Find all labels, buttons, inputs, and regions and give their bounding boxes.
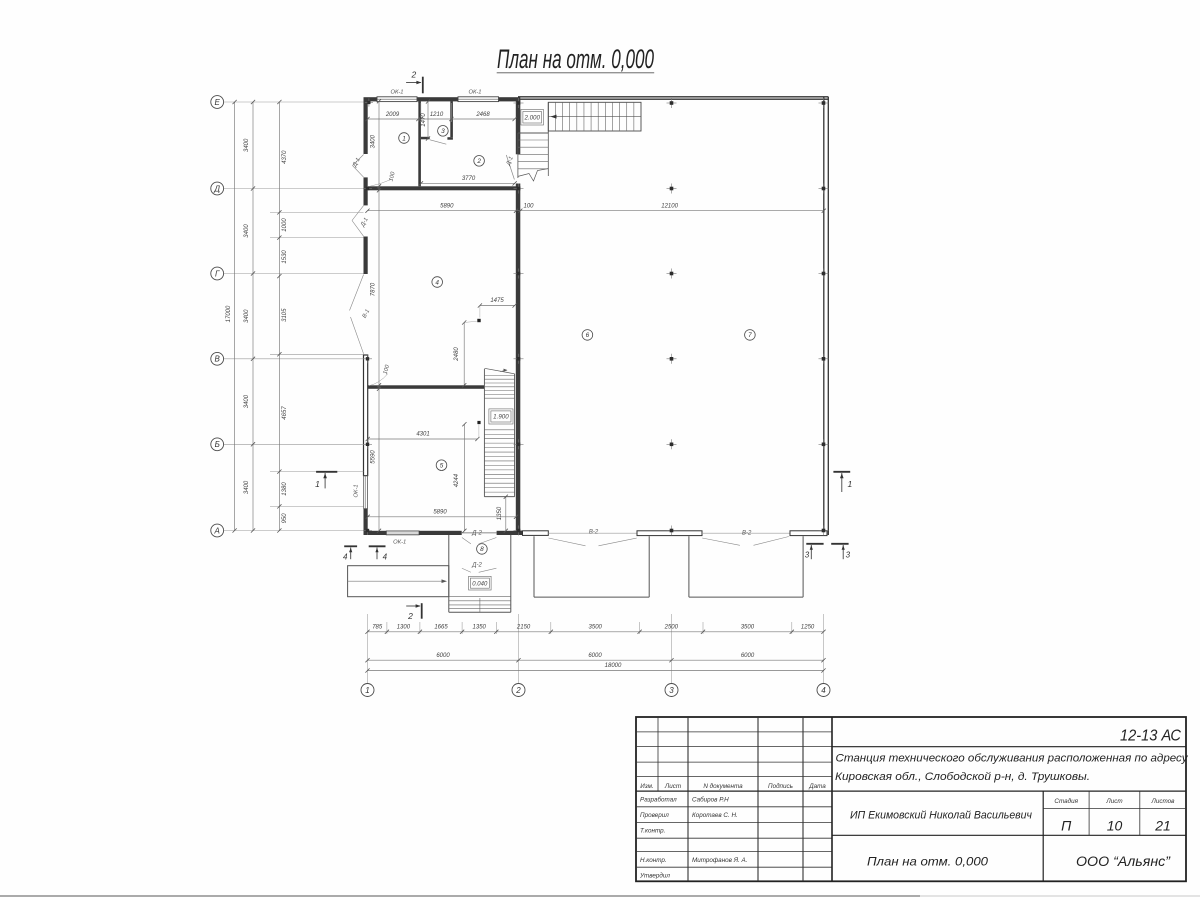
svg-text:4: 4 [821, 686, 826, 695]
svg-text:5: 5 [440, 463, 444, 470]
svg-text:2150: 2150 [516, 624, 531, 630]
svg-text:ОК-1: ОК-1 [353, 484, 359, 497]
svg-text:Изм.: Изм. [640, 783, 653, 790]
svg-text:1: 1 [315, 479, 320, 489]
svg-text:1665: 1665 [434, 624, 448, 630]
svg-text:Б: Б [215, 440, 220, 449]
svg-text:950: 950 [282, 513, 288, 524]
svg-text:3105: 3105 [282, 308, 288, 322]
svg-text:7: 7 [748, 332, 752, 339]
svg-text:6000: 6000 [588, 653, 602, 659]
svg-text:2: 2 [407, 611, 413, 621]
svg-text:10: 10 [1107, 818, 1123, 834]
svg-text:2: 2 [476, 158, 481, 165]
svg-text:1: 1 [365, 686, 369, 695]
svg-text:18000: 18000 [605, 663, 622, 669]
svg-text:8: 8 [480, 546, 484, 553]
svg-text:12-13 АС: 12-13 АС [1120, 728, 1182, 745]
svg-text:ОК-1: ОК-1 [390, 90, 403, 96]
svg-text:17000: 17000 [226, 305, 232, 322]
svg-text:1300: 1300 [397, 624, 411, 630]
svg-text:4244: 4244 [454, 473, 460, 487]
svg-text:3400: 3400 [244, 480, 250, 494]
svg-text:ОК-1: ОК-1 [393, 540, 406, 546]
svg-text:3400: 3400 [371, 134, 377, 148]
svg-text:3400: 3400 [244, 138, 250, 152]
svg-text:2: 2 [411, 70, 417, 80]
svg-text:Коротаев С. Н.: Коротаев С. Н. [692, 812, 738, 819]
svg-text:В-2: В-2 [742, 531, 752, 537]
svg-text:3: 3 [805, 551, 810, 560]
svg-text:1250: 1250 [801, 624, 815, 630]
svg-text:Д-2: Д-2 [471, 562, 482, 568]
svg-text:В: В [215, 355, 221, 364]
svg-text:4370: 4370 [282, 150, 288, 164]
svg-text:3400: 3400 [244, 224, 250, 238]
svg-text:1380: 1380 [282, 482, 288, 496]
svg-text:2500: 2500 [664, 624, 679, 630]
svg-text:П: П [1061, 818, 1072, 834]
svg-text:4657: 4657 [282, 406, 288, 420]
svg-text:1: 1 [848, 479, 853, 489]
svg-text:1350: 1350 [473, 624, 487, 630]
svg-text:4: 4 [435, 279, 439, 286]
svg-text:А: А [214, 526, 220, 535]
svg-text:12100: 12100 [661, 203, 678, 209]
svg-text:Г: Г [215, 269, 220, 278]
svg-text:Д: Д [213, 184, 220, 193]
svg-text:Подпись: Подпись [768, 782, 793, 790]
svg-text:3: 3 [441, 128, 445, 135]
svg-text:Проверил: Проверил [640, 812, 669, 819]
svg-text:N документа: N документа [703, 782, 743, 790]
svg-text:1530: 1530 [282, 250, 288, 264]
svg-text:Кировская обл., Слободской р-н: Кировская обл., Слободской р-н, д. Трушк… [835, 771, 1090, 783]
svg-text:785: 785 [372, 624, 383, 630]
svg-text:0.040: 0.040 [472, 582, 488, 588]
svg-text:ИП Екимовский Николай Васильев: ИП Екимовский Николай Васильевич [850, 810, 1032, 822]
svg-text:Лист: Лист [664, 783, 681, 790]
svg-text:Н.контр.: Н.контр. [640, 857, 667, 864]
svg-text:3400: 3400 [244, 309, 250, 323]
svg-text:Т.контр.: Т.контр. [640, 828, 665, 835]
svg-text:3500: 3500 [741, 624, 755, 630]
svg-text:4: 4 [343, 553, 348, 562]
svg-text:Листов: Листов [1151, 798, 1176, 805]
svg-text:Сабиров Р.Н: Сабиров Р.Н [692, 796, 729, 804]
svg-text:1350: 1350 [497, 506, 503, 520]
svg-text:5890: 5890 [440, 203, 454, 209]
svg-text:1470: 1470 [421, 113, 427, 127]
svg-text:6000: 6000 [436, 653, 450, 659]
svg-text:Митрофанов Я. А.: Митрофанов Я. А. [692, 857, 747, 864]
svg-text:План на отм. 0,000: План на отм. 0,000 [497, 44, 654, 74]
svg-text:Стадия: Стадия [1054, 797, 1078, 805]
svg-text:4301: 4301 [416, 432, 429, 438]
svg-text:Станция технического обслужива: Станция технического обслуживания распол… [836, 753, 1189, 765]
svg-text:6000: 6000 [741, 653, 755, 659]
svg-text:3770: 3770 [462, 176, 476, 182]
svg-text:2: 2 [515, 686, 521, 695]
svg-text:3: 3 [846, 551, 851, 560]
svg-text:6: 6 [586, 332, 590, 339]
svg-text:100: 100 [523, 203, 534, 209]
svg-text:2.000: 2.000 [523, 114, 540, 121]
svg-text:1.900: 1.900 [493, 414, 509, 421]
svg-text:4: 4 [383, 553, 388, 562]
svg-text:7870: 7870 [371, 282, 377, 296]
svg-text:Е: Е [215, 98, 221, 107]
svg-text:План на отм. 0,000: План на отм. 0,000 [867, 855, 988, 869]
svg-text:21: 21 [1154, 818, 1171, 834]
svg-text:Утвердил: Утвердил [639, 872, 670, 880]
svg-text:3400: 3400 [244, 394, 250, 408]
svg-text:3500: 3500 [589, 624, 603, 630]
svg-text:В-2: В-2 [589, 530, 599, 536]
svg-text:ОК-1: ОК-1 [468, 90, 481, 96]
svg-text:Дата: Дата [808, 783, 826, 790]
svg-text:Лист: Лист [1105, 798, 1122, 805]
svg-text:1210: 1210 [430, 112, 444, 118]
svg-text:1000: 1000 [282, 218, 288, 232]
svg-text:1475: 1475 [490, 298, 504, 304]
svg-text:Д-2: Д-2 [471, 530, 482, 536]
svg-text:1: 1 [402, 135, 406, 142]
svg-text:3: 3 [669, 686, 674, 695]
svg-text:2009: 2009 [385, 112, 400, 118]
svg-text:5890: 5890 [433, 509, 447, 515]
svg-text:5590: 5590 [371, 450, 377, 464]
svg-text:ООО “Альянс”: ООО “Альянс” [1076, 853, 1171, 869]
svg-text:2480: 2480 [454, 347, 460, 362]
svg-text:Разработал: Разработал [640, 796, 677, 804]
svg-text:2468: 2468 [475, 112, 490, 118]
